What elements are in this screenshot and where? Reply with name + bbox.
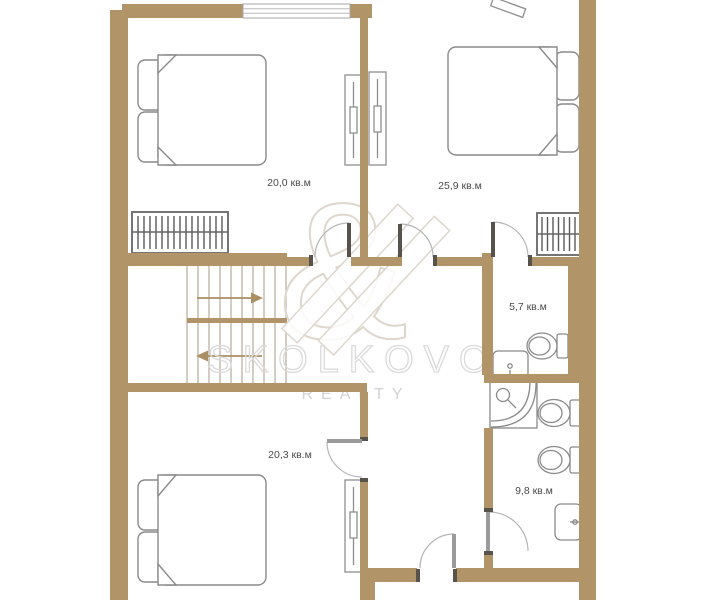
double-bed-icon: [138, 55, 266, 165]
wardrobe-icon: [345, 480, 362, 572]
wall: [484, 374, 583, 383]
double-bed-icon: [138, 475, 266, 585]
wall: [456, 568, 583, 582]
wall: [360, 568, 417, 582]
wardrobe-icon: [369, 72, 386, 165]
wall: [360, 482, 368, 568]
wall: [128, 253, 287, 266]
door-jamb: [309, 255, 313, 266]
pillow-icon: [555, 52, 579, 100]
door-jamb: [484, 551, 493, 555]
room-area-label: 20,3 кв.м: [268, 449, 312, 461]
wall: [579, 0, 596, 582]
washbasin-icon: [493, 351, 528, 378]
bidet-icon: [538, 447, 581, 474]
wall: [484, 428, 493, 512]
wall: [110, 10, 128, 600]
room-area-label: 25,9 кв.м: [438, 180, 482, 192]
wall: [350, 4, 372, 18]
washbasin-icon: [555, 504, 582, 540]
wall: [579, 582, 596, 600]
wall: [482, 253, 493, 375]
door-jamb: [433, 255, 437, 266]
wall: [351, 257, 402, 266]
door-jamb: [416, 569, 420, 582]
wall: [287, 257, 309, 266]
radiator-icon: [132, 212, 228, 253]
watermark-brand: SKOLKOVO: [207, 339, 498, 381]
pillow-icon: [555, 104, 579, 152]
corner-bath-icon: [490, 382, 537, 428]
door-leaf: [327, 439, 362, 443]
wardrobe-icon: [345, 75, 362, 165]
door-leaf: [491, 222, 495, 257]
toilet-icon: [538, 400, 581, 427]
wall: [437, 257, 482, 266]
wall: [360, 392, 368, 437]
wall: [128, 383, 367, 392]
wall: [484, 555, 493, 568]
room-area-label: 5,7 кв.м: [509, 301, 547, 313]
door-jamb: [484, 508, 493, 512]
door-leaf: [398, 224, 402, 257]
wall: [122, 4, 243, 18]
window-icon: [243, 4, 350, 18]
floor-plan: & SKOLKOVO REALTY: [0, 0, 720, 600]
door-leaf: [486, 512, 490, 551]
room-area-label: 9,8 кв.м: [515, 485, 553, 497]
door-leaf: [347, 223, 351, 257]
wall: [568, 266, 579, 374]
door-leaf: [452, 534, 456, 568]
room-area-label: 20,0 кв.м: [267, 177, 311, 189]
toilet-icon: [527, 333, 568, 359]
door-jamb: [528, 255, 532, 266]
radiator-icon: [537, 213, 583, 255]
door-jamb: [360, 478, 368, 482]
door-jamb: [453, 569, 457, 582]
wall: [360, 18, 368, 260]
wall: [360, 582, 375, 600]
wall: [532, 257, 579, 266]
